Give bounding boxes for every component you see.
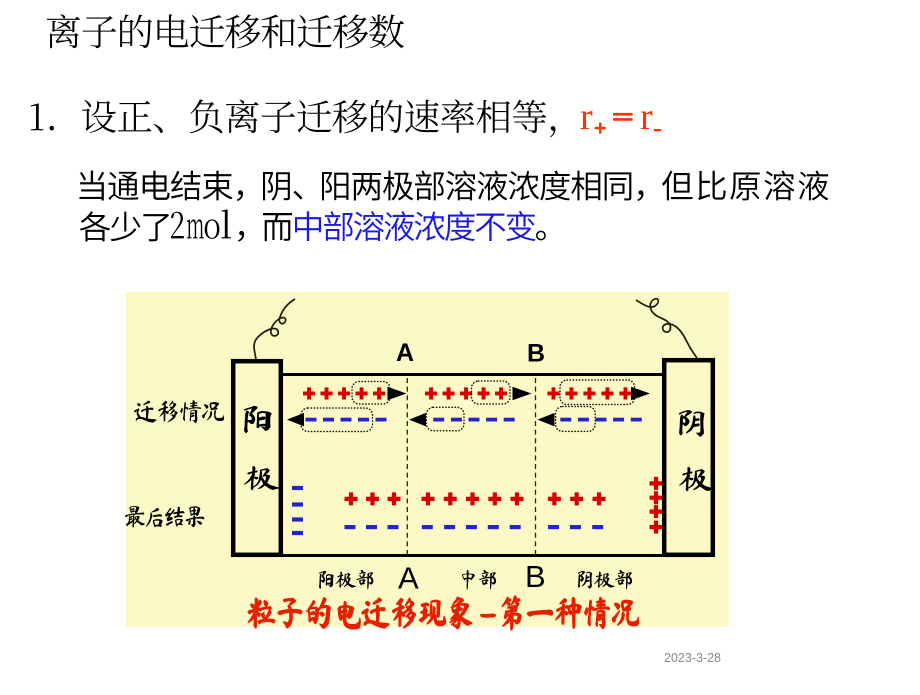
svg-text:B: B xyxy=(527,340,545,368)
svg-text:B: B xyxy=(525,559,546,594)
svg-text:r: r xyxy=(580,96,593,138)
svg-text:r: r xyxy=(640,96,653,138)
svg-text:A: A xyxy=(396,339,414,367)
svg-text:2023-3-28: 2023-3-28 xyxy=(664,651,721,665)
svg-text:A: A xyxy=(398,561,419,596)
